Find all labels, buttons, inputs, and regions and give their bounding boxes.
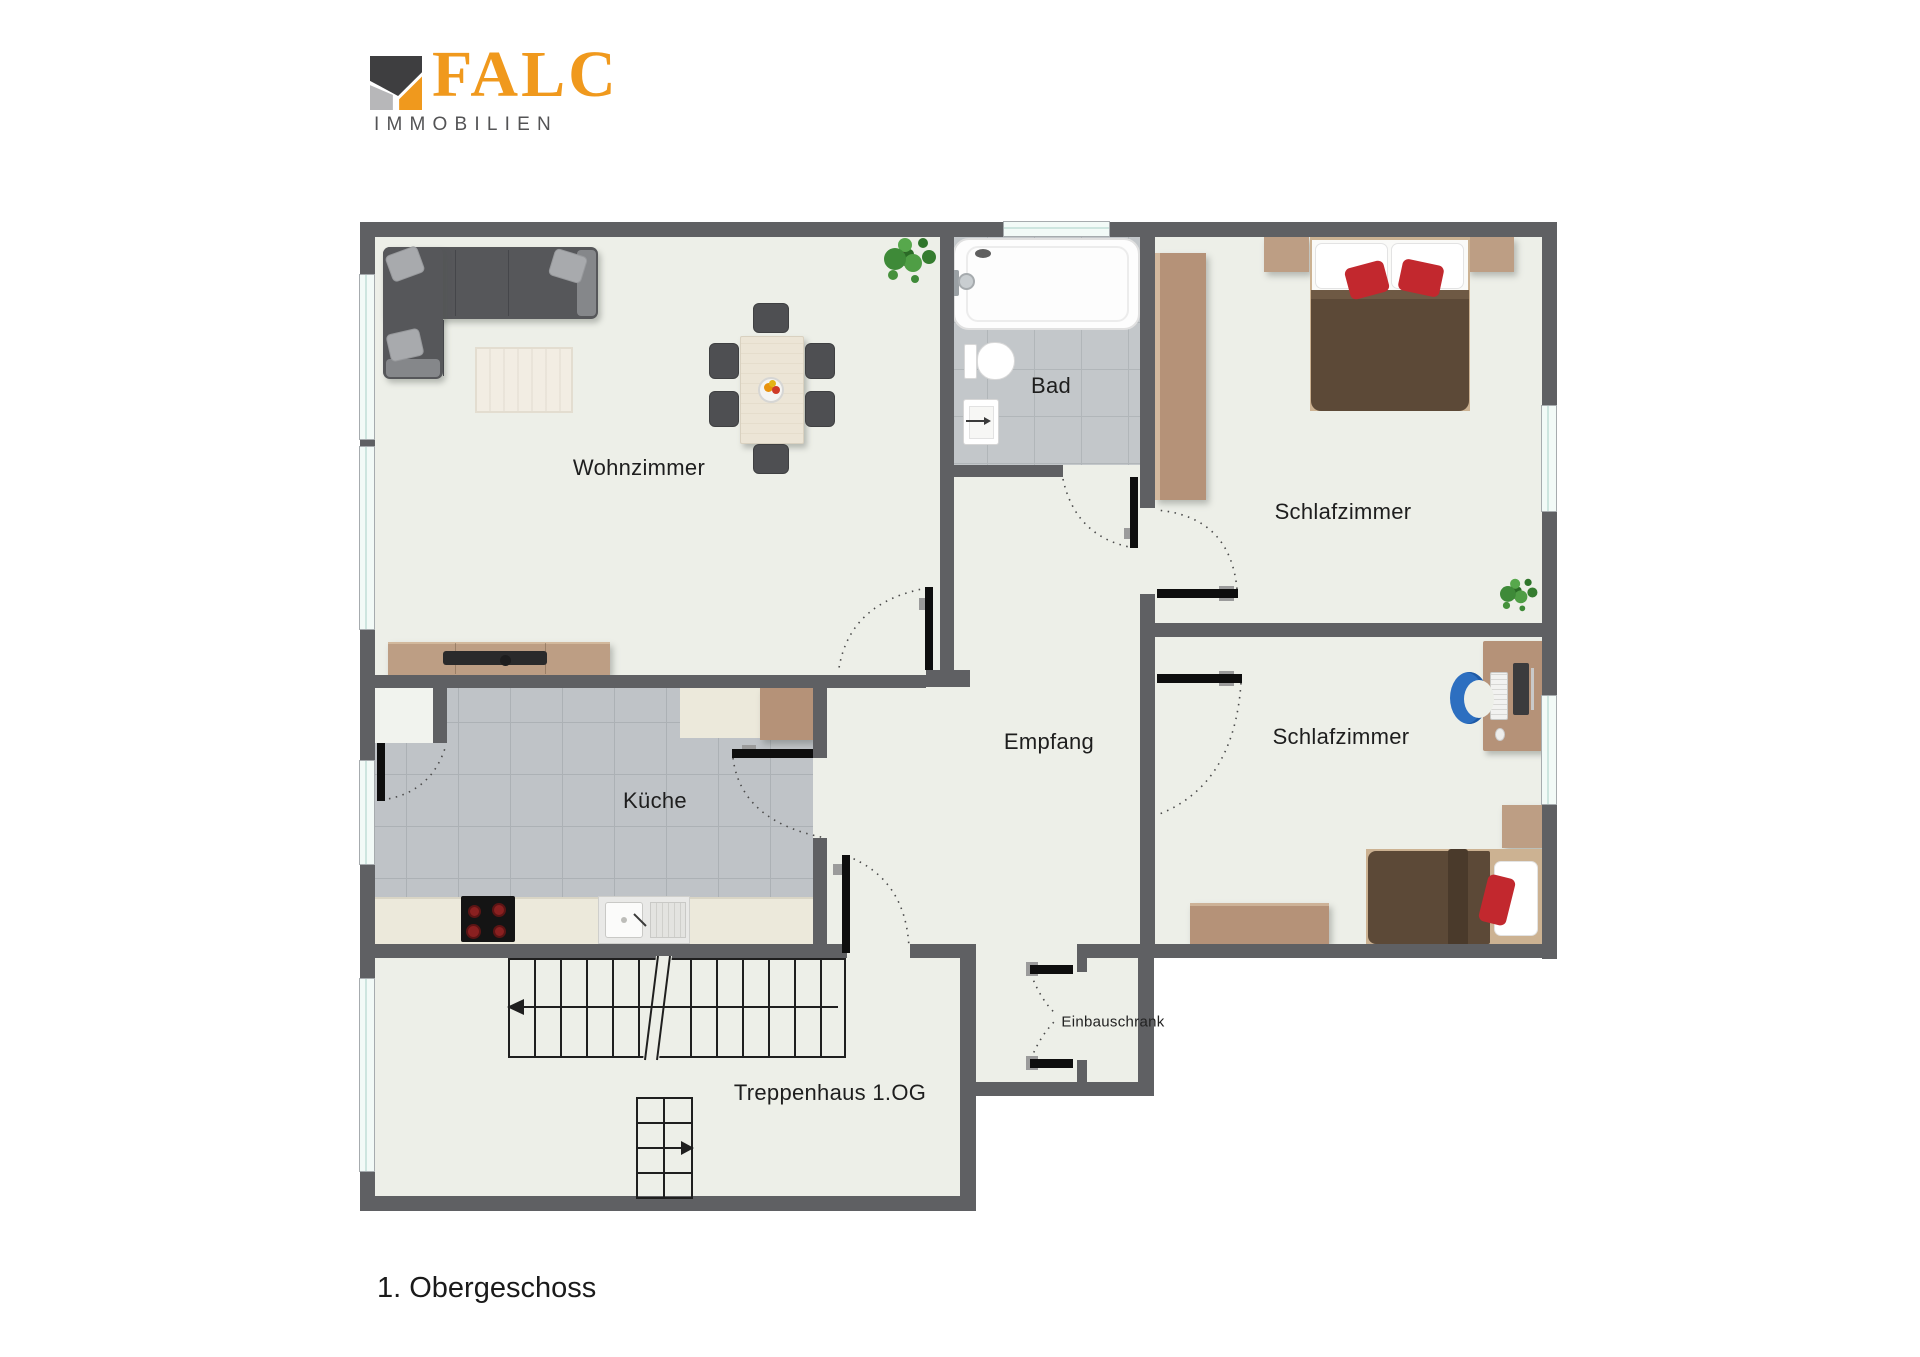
room-label-wohnzimmer: Wohnzimmer xyxy=(573,455,705,481)
door-leaf xyxy=(1157,674,1242,683)
door-leaf xyxy=(842,855,850,953)
wall xyxy=(1077,944,1557,958)
room-label-kueche: Küche xyxy=(623,788,687,814)
window xyxy=(1541,695,1557,805)
closet-door-leaf xyxy=(1030,1059,1073,1068)
window xyxy=(359,760,375,865)
door-leaf xyxy=(1157,589,1238,598)
wall xyxy=(1077,958,1087,972)
wall xyxy=(360,1196,976,1211)
window xyxy=(359,446,375,630)
dining-chair xyxy=(753,444,789,474)
duvet xyxy=(1311,290,1469,411)
rug xyxy=(475,347,573,413)
wall xyxy=(1140,222,1155,508)
room-label-einbauschrank: Einbauschrank xyxy=(1061,1014,1164,1031)
dining-chair xyxy=(753,303,789,333)
wall xyxy=(1077,1060,1087,1082)
window xyxy=(1003,221,1110,237)
room-label-treppenhaus: Treppenhaus 1.OG xyxy=(734,1080,926,1106)
falc-logo-icon xyxy=(370,56,422,110)
dining-chair xyxy=(805,343,835,379)
wall xyxy=(926,670,970,687)
burner-icon xyxy=(466,924,481,939)
floor-stairwell xyxy=(375,958,960,1196)
dining-chair xyxy=(805,391,835,427)
window xyxy=(359,274,375,440)
sideboard xyxy=(1190,903,1329,944)
window xyxy=(359,978,375,1172)
window xyxy=(1541,405,1557,512)
room-label-schlafzimmer-unten: Schlafzimmer xyxy=(1273,724,1410,750)
wall xyxy=(910,944,976,958)
tv-icon xyxy=(443,651,547,665)
wall xyxy=(813,838,827,944)
door-leaf xyxy=(732,749,813,758)
kitchen-counter xyxy=(374,897,813,944)
kitchen-counter-corner xyxy=(680,688,760,738)
wall xyxy=(1542,222,1557,959)
mouse-icon xyxy=(1495,728,1505,741)
monitor-icon xyxy=(1513,663,1529,715)
wall xyxy=(1140,637,1155,944)
wall xyxy=(960,1082,1154,1096)
wall xyxy=(813,688,827,758)
nightstand xyxy=(1264,237,1309,272)
door-leaf xyxy=(925,587,933,670)
burner-icon xyxy=(468,905,481,918)
room-label-empfang: Empfang xyxy=(1004,729,1094,755)
burner-icon xyxy=(493,925,506,938)
brand-name: FALC xyxy=(432,42,619,108)
wall xyxy=(360,944,847,958)
nightstand xyxy=(1502,805,1544,848)
wall xyxy=(374,675,926,688)
dining-chair xyxy=(709,391,739,427)
kitchen-entry-niche xyxy=(375,688,433,743)
room-label-bad: Bad xyxy=(1031,373,1071,399)
room-label-schlafzimmer-oben: Schlafzimmer xyxy=(1275,499,1412,525)
door-leaf xyxy=(377,743,385,801)
duvet xyxy=(1368,851,1490,944)
wardrobe xyxy=(1155,253,1206,500)
wall xyxy=(940,222,954,670)
kitchen-cabinet xyxy=(760,688,813,740)
drainboard xyxy=(650,902,686,938)
burner-icon xyxy=(492,903,506,917)
wall xyxy=(940,465,1063,477)
brand-subtitle: IMMOBILIEN xyxy=(374,114,558,136)
floorplan-page: FALC IMMOBILIEN xyxy=(0,0,1920,1357)
closet-door-leaf xyxy=(1030,965,1073,974)
toilet xyxy=(964,344,977,379)
wall xyxy=(1140,623,1557,637)
nightstand xyxy=(1467,237,1514,272)
tub-drain xyxy=(975,249,991,258)
plant-icon xyxy=(1500,586,1516,602)
plant-icon xyxy=(884,248,906,270)
wall xyxy=(360,222,1557,237)
floor-level-label: 1. Obergeschoss xyxy=(377,1272,596,1305)
wall xyxy=(433,688,447,743)
dining-chair xyxy=(709,343,739,379)
door-leaf xyxy=(1130,477,1138,548)
